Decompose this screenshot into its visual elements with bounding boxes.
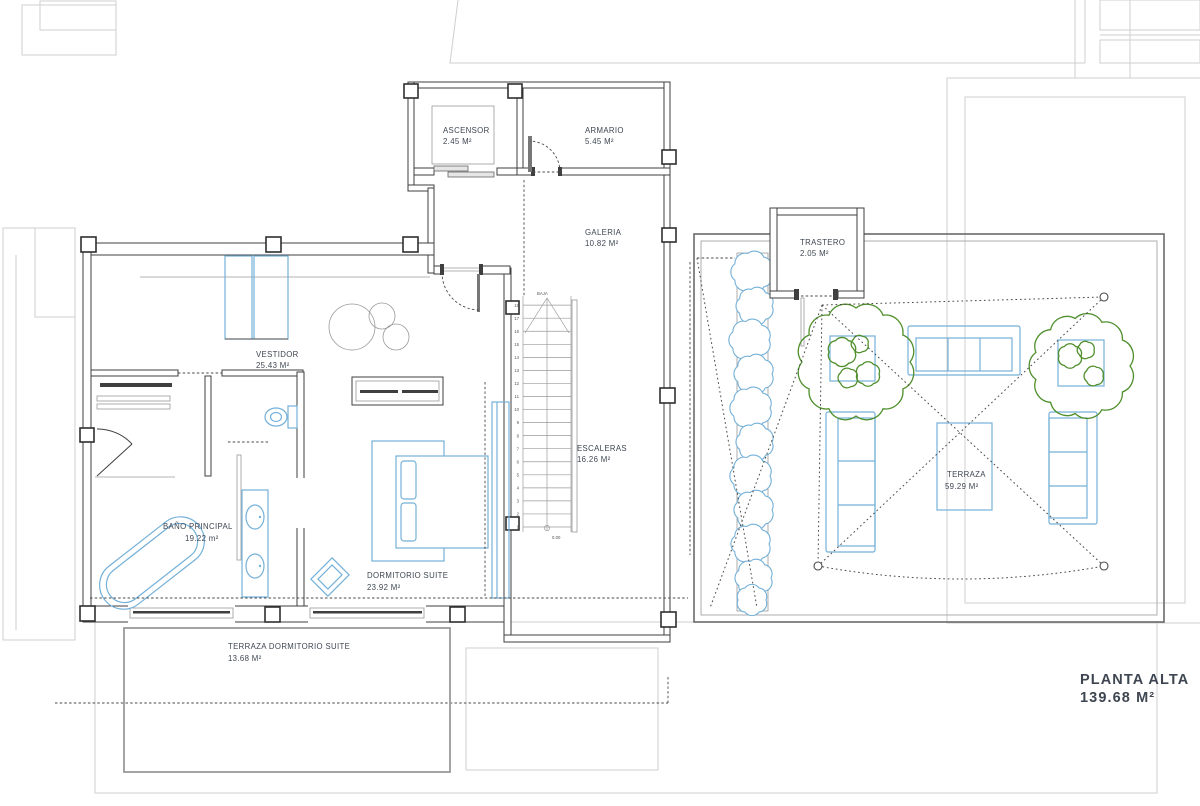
trastero-room [770, 208, 864, 346]
lower-floor-underlay [3, 0, 1200, 793]
room-labels: ASCENSOR 2.45 M² ARMARIO 5.45 M² GALERIA… [163, 126, 986, 663]
stair-step-number: 15 [514, 342, 519, 347]
sofa-right [1049, 412, 1097, 524]
tree-left [798, 304, 913, 419]
stair-step-number: 2 [517, 512, 520, 517]
stair-step-number: 13 [514, 368, 519, 373]
stair-step-number: 6 [517, 459, 520, 464]
floor-plan: 123456789101112131415161718 BAJA 0.00 [0, 0, 1200, 806]
stair-step-number: 10 [514, 407, 519, 412]
window-dormitorio [308, 605, 426, 623]
stair-step-number: 9 [517, 420, 520, 425]
structural-columns [80, 84, 676, 627]
stair-step-number: 4 [517, 485, 520, 490]
label-escaleras: ESCALERAS [577, 444, 627, 453]
area-escaleras: 16.26 M² [577, 455, 611, 464]
vestidor-fixtures [225, 256, 409, 350]
label-galeria: GALERIA [585, 228, 622, 237]
area-trastero: 2.05 M² [800, 249, 829, 258]
label-bano-principal: BAÑO PRINCIPAL [163, 522, 233, 531]
stair-step-number: 12 [514, 381, 519, 386]
tree-right [1029, 314, 1133, 419]
sofa-left [826, 412, 875, 552]
stair-step-number: 16 [514, 329, 519, 334]
label-armario: ARMARIO [585, 126, 624, 135]
stair-step-number: 18 [514, 303, 519, 308]
stair-step-number: 7 [517, 446, 520, 451]
stair-step-number: 8 [517, 433, 520, 438]
toilet [265, 406, 297, 428]
area-terraza: 59.29 M² [945, 482, 979, 491]
stair-step-number: 14 [514, 355, 519, 360]
area-terraza-dormitorio: 13.68 M² [228, 654, 262, 663]
stair-step-number: 11 [515, 394, 520, 399]
hedge-plant [729, 251, 773, 616]
plan-title-area: 139.68 M² [1080, 690, 1155, 706]
stair-level-mark: 0.00 [552, 535, 561, 540]
sofa-top [908, 326, 1020, 375]
bed [372, 441, 488, 561]
area-dormitorio-suite: 23.92 M² [367, 583, 401, 592]
bedroom-furniture [311, 402, 509, 598]
area-bano-principal: 19.22 m² [185, 534, 219, 543]
bathroom-fixtures [90, 406, 297, 619]
area-vestidor: 25.43 M² [256, 361, 290, 370]
label-vestidor: VESTIDOR [256, 350, 299, 359]
title-block: PLANTA ALTA 139.68 M² [1080, 672, 1189, 706]
stair-step-number: 17 [514, 316, 519, 321]
bench-chair [311, 558, 349, 596]
label-ascensor: ASCENSOR [443, 126, 490, 135]
stair-step-number: 5 [517, 472, 520, 477]
stair-step-number: 3 [517, 499, 520, 504]
area-galeria: 10.82 M² [585, 239, 619, 248]
area-armario: 5.45 M² [585, 137, 614, 146]
label-terraza: TERRAZA [947, 470, 986, 479]
label-dormitorio-suite: DORMITORIO SUITE [367, 571, 448, 580]
vanity-sinks [242, 490, 268, 597]
stair-direction-label: BAJA [537, 291, 548, 296]
staircase: 123456789101112131415161718 BAJA 0.00 [514, 291, 577, 540]
area-ascensor: 2.45 M² [443, 137, 472, 146]
plan-title: PLANTA ALTA [1080, 672, 1189, 688]
label-trastero: TRASTERO [800, 238, 845, 247]
window-bano [128, 605, 235, 623]
label-terraza-dormitorio: TERRAZA DORMITORIO SUITE [228, 642, 350, 651]
tv-unit [352, 377, 443, 405]
